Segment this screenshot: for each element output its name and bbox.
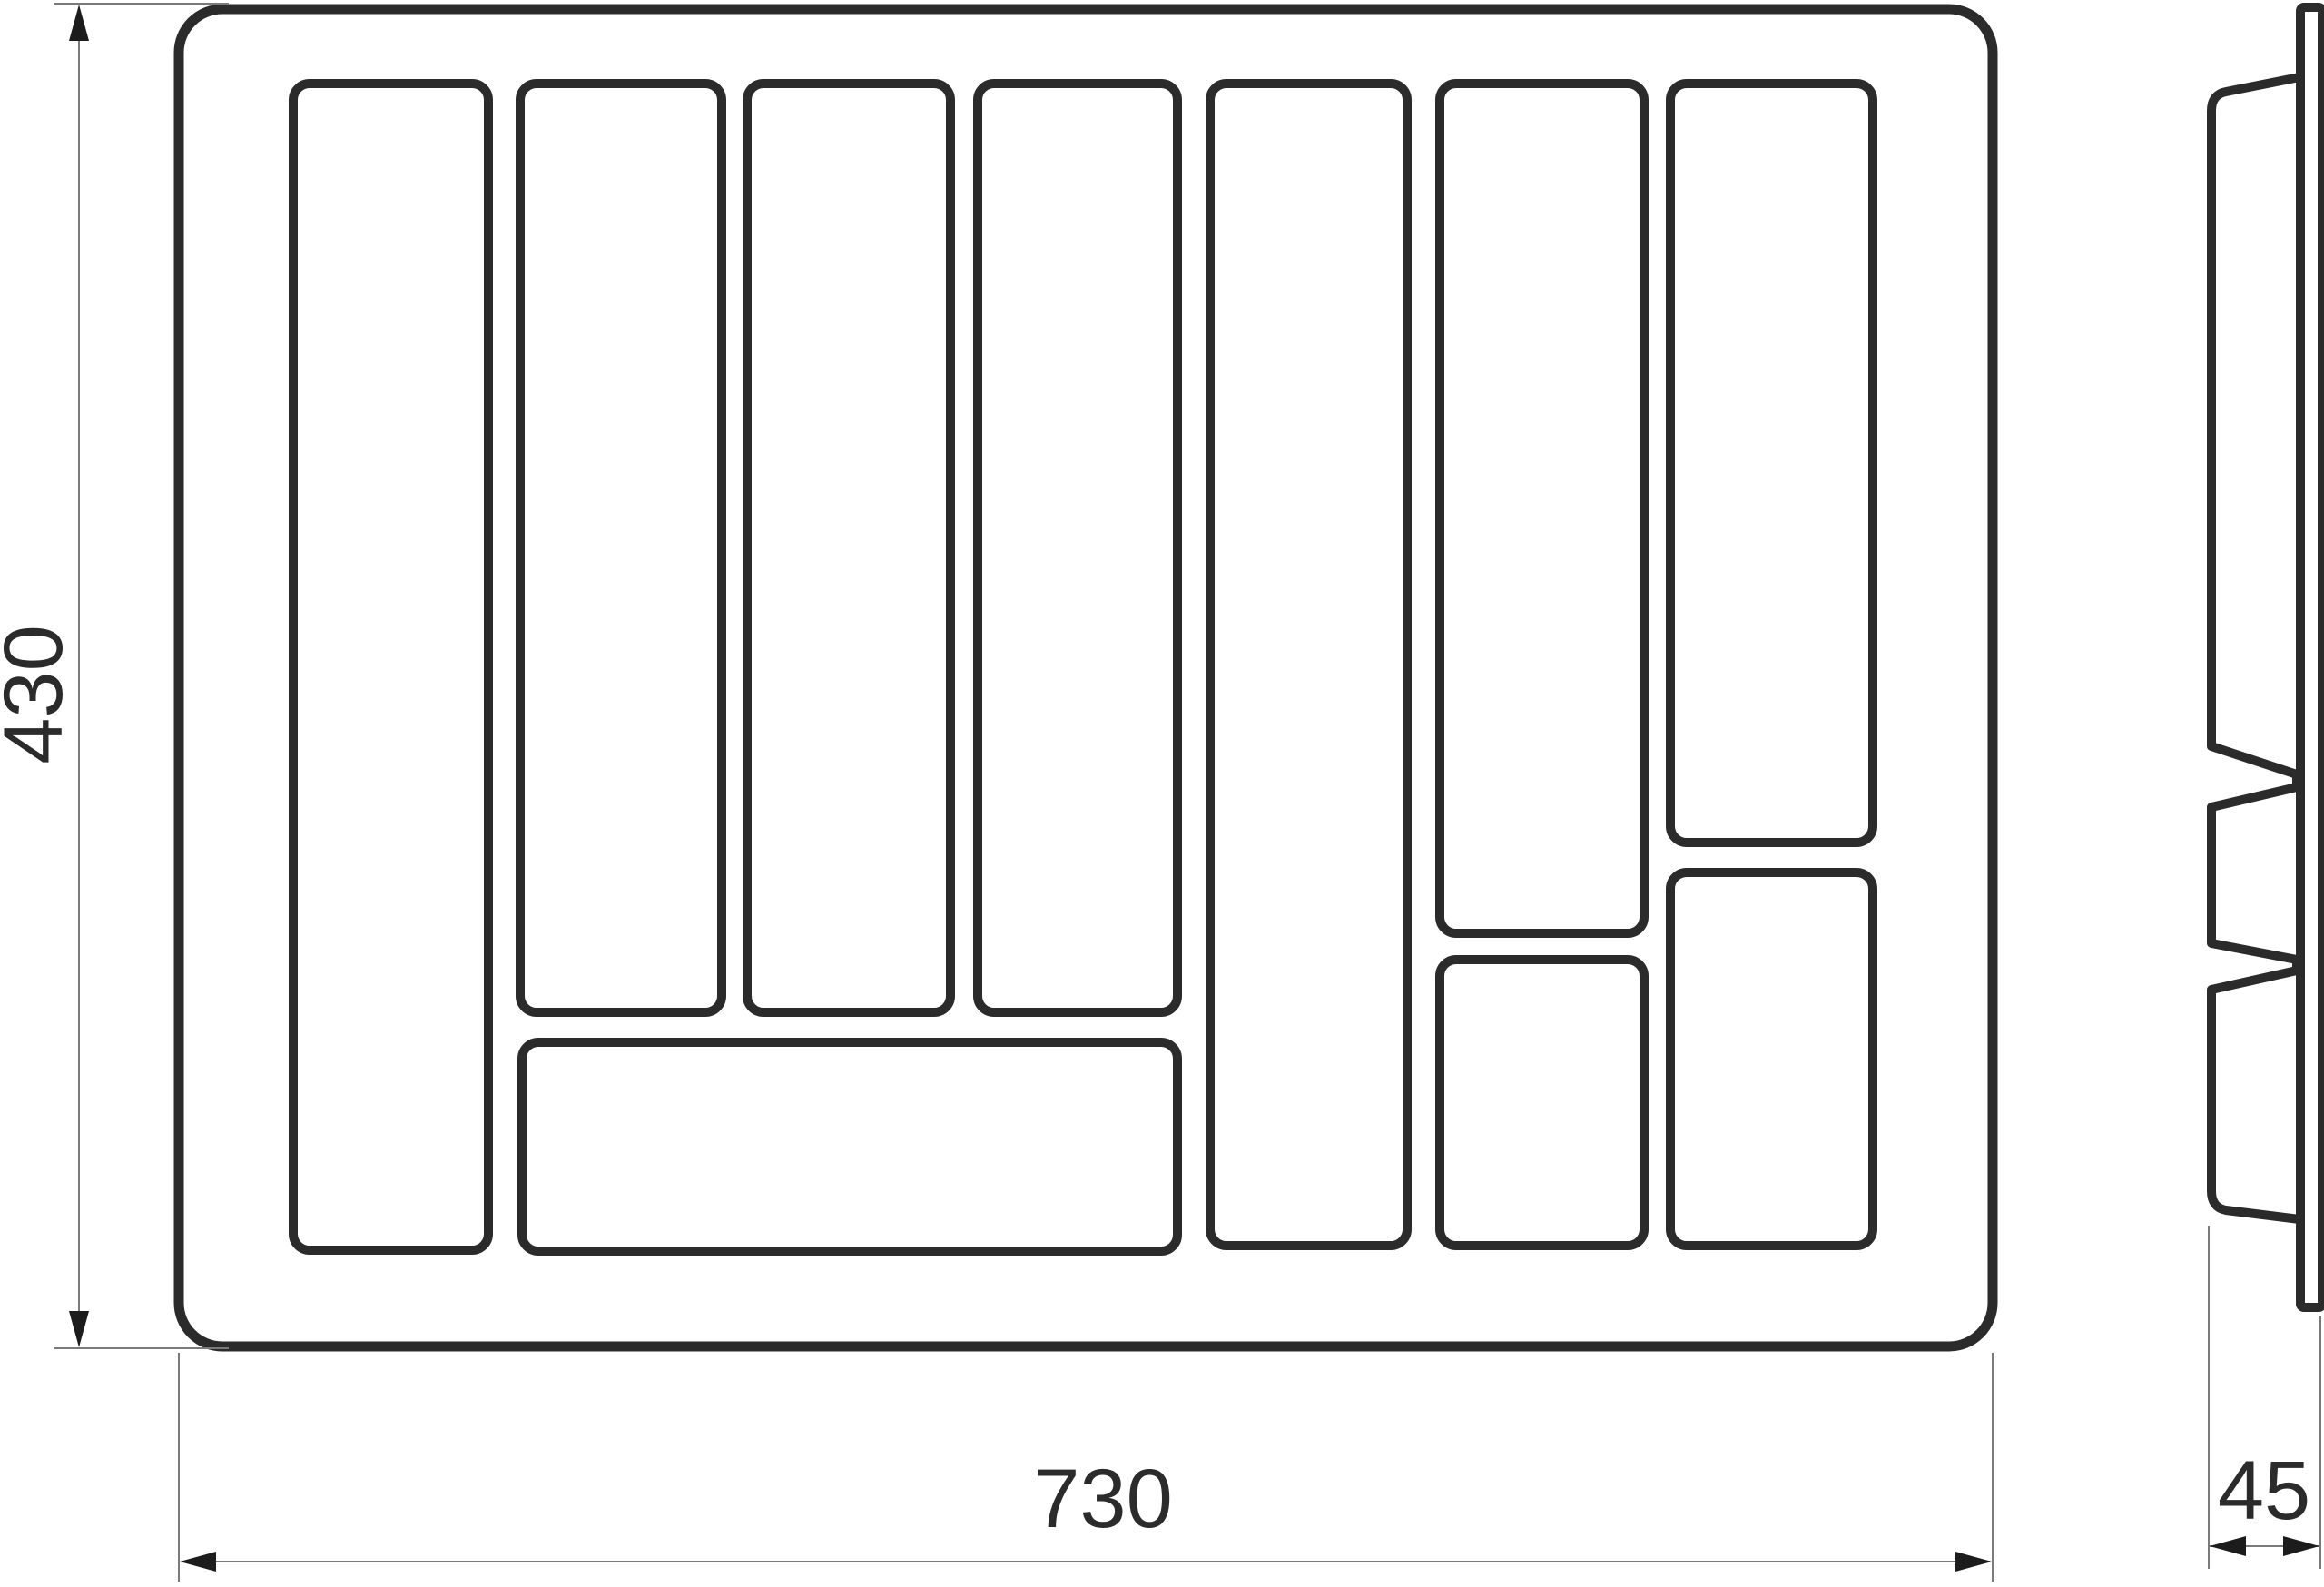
compartment-col6-lower <box>1440 960 1644 1246</box>
arrowhead <box>2283 1536 2319 1556</box>
compartment-col3 <box>747 84 950 1012</box>
arrowhead <box>180 1552 216 1572</box>
depth-dimension-label: 45 <box>2218 1444 2310 1537</box>
compartment-left-tall <box>293 84 488 1250</box>
width-dimension-label: 730 <box>1033 1453 1173 1545</box>
compartment-bottom-wide <box>522 1042 1177 1251</box>
width-dimension: 730 <box>179 1353 1993 1582</box>
arrowhead <box>69 1311 89 1347</box>
drawing-canvas: 43073045 <box>0 0 2324 1587</box>
front-view <box>179 9 1993 1346</box>
side-profile-lip <box>2211 77 2299 1219</box>
side-profile-body <box>2300 7 2322 1307</box>
compartment-col5-tall <box>1210 84 1407 1246</box>
arrowhead <box>2210 1536 2246 1556</box>
side-profile-view <box>2211 7 2322 1307</box>
arrowhead <box>1955 1552 1992 1572</box>
compartment-col4 <box>978 84 1177 1012</box>
tray-outline <box>179 9 1993 1346</box>
compartment-col7-lower <box>1670 872 1873 1246</box>
arrowhead <box>69 5 89 41</box>
height-dimension: 430 <box>0 4 229 1348</box>
height-dimension-label: 430 <box>0 625 80 764</box>
technical-drawing: 43073045 <box>0 0 2324 1587</box>
compartment-col7-upper <box>1670 84 1873 843</box>
compartment-col6-upper <box>1440 84 1644 933</box>
compartment-col2 <box>520 84 722 1012</box>
